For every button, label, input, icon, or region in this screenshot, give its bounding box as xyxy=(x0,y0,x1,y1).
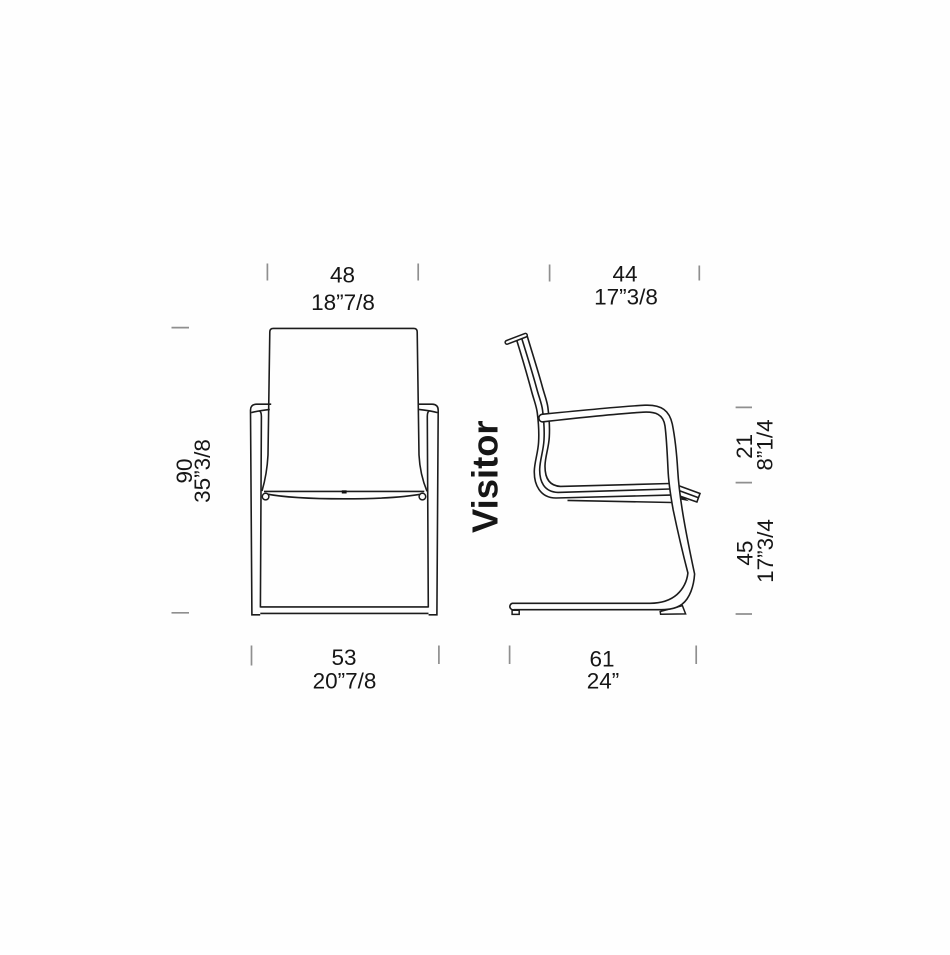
svg-text:35”3/8: 35”3/8 xyxy=(190,439,215,503)
svg-text:44: 44 xyxy=(612,262,637,287)
svg-text:17”3/4: 17”3/4 xyxy=(753,519,778,583)
svg-text:8”1/4: 8”1/4 xyxy=(753,419,778,470)
svg-text:48: 48 xyxy=(330,263,355,288)
svg-text:53: 53 xyxy=(331,645,356,670)
svg-text:18”7/8: 18”7/8 xyxy=(311,290,375,315)
svg-text:17”3/8: 17”3/8 xyxy=(594,285,658,310)
svg-text:Visitor: Visitor xyxy=(465,420,506,533)
svg-text:20”7/8: 20”7/8 xyxy=(313,668,377,693)
svg-text:24”: 24” xyxy=(587,668,620,693)
